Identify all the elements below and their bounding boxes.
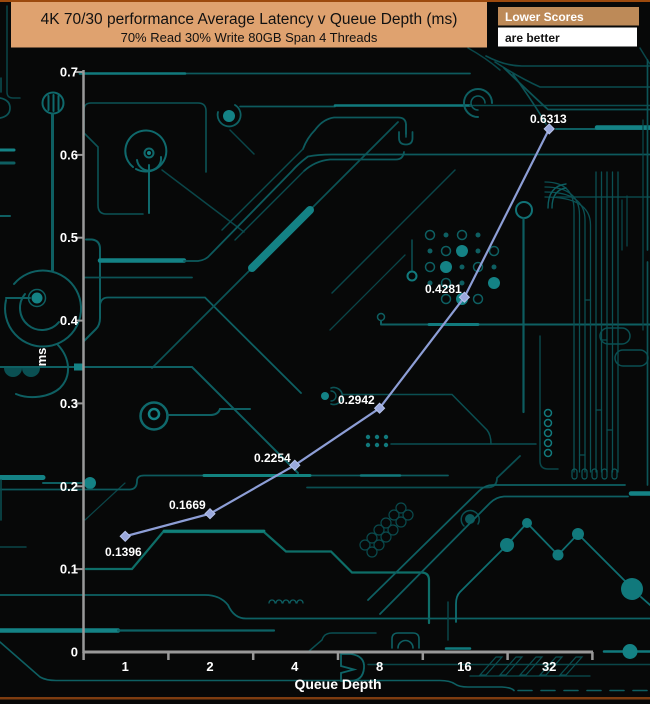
svg-text:0.6: 0.6 — [60, 147, 78, 162]
svg-text:2: 2 — [206, 659, 213, 674]
svg-text:4K 70/30 performance Average L: 4K 70/30 performance Average Latency v Q… — [41, 11, 458, 28]
svg-text:0.1396: 0.1396 — [105, 545, 142, 559]
svg-text:0.4: 0.4 — [60, 313, 79, 328]
svg-text:70% Read 30% Write 80GB Span 4: 70% Read 30% Write 80GB Span 4 Threads — [121, 30, 378, 45]
svg-text:0.6313: 0.6313 — [530, 112, 567, 126]
svg-text:0.4281: 0.4281 — [425, 282, 462, 296]
svg-text:0.2942: 0.2942 — [338, 393, 375, 407]
svg-text:0.5: 0.5 — [60, 230, 78, 245]
svg-text:16: 16 — [457, 659, 471, 674]
svg-text:0.7: 0.7 — [60, 65, 78, 80]
svg-text:Lower Scores: Lower Scores — [505, 10, 584, 24]
svg-text:1: 1 — [122, 659, 129, 674]
svg-text:0.3: 0.3 — [60, 396, 78, 411]
svg-text:0.1669: 0.1669 — [169, 498, 206, 512]
svg-text:ms: ms — [34, 348, 49, 367]
svg-text:are better: are better — [505, 31, 560, 45]
svg-text:0.2254: 0.2254 — [254, 451, 291, 465]
svg-text:0: 0 — [71, 645, 78, 660]
svg-text:0.2: 0.2 — [60, 479, 78, 494]
svg-text:8: 8 — [376, 659, 383, 674]
svg-text:Queue Depth: Queue Depth — [294, 676, 381, 692]
svg-text:32: 32 — [542, 659, 556, 674]
svg-text:0.1: 0.1 — [60, 562, 78, 577]
svg-text:4: 4 — [291, 659, 299, 674]
